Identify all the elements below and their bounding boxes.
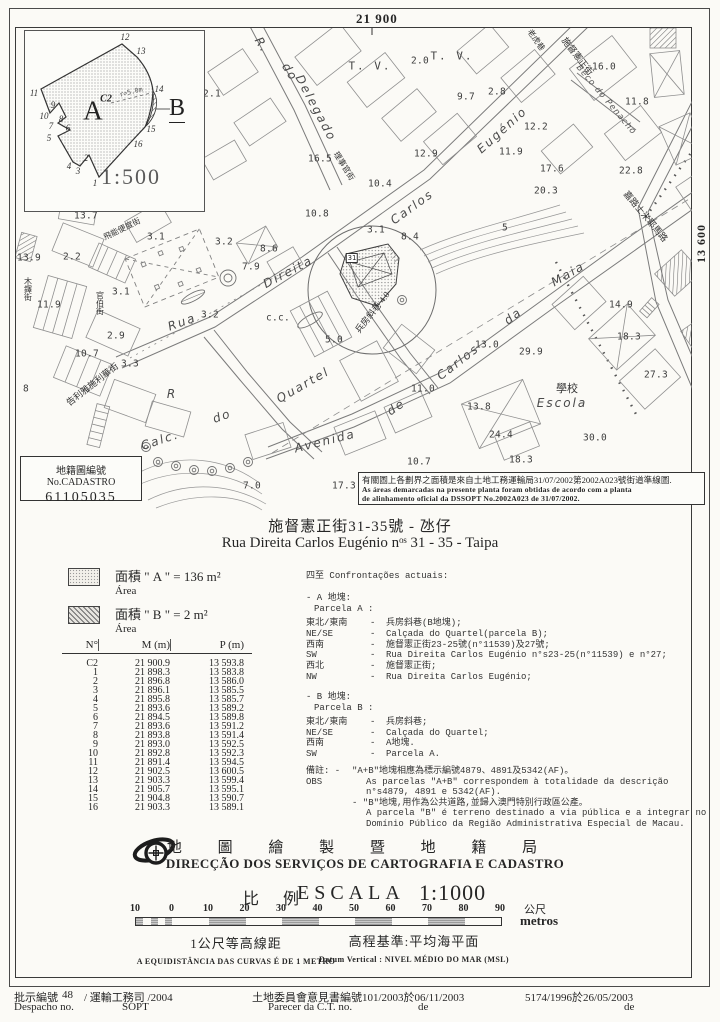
process-reference: 5174/1996於26/05/2003 bbox=[525, 989, 633, 1005]
scale-label-portuguese: ESCALA bbox=[297, 882, 405, 905]
inset-vertex-number: 15 bbox=[147, 124, 156, 134]
scale-segment bbox=[428, 918, 465, 925]
confrontation-text: A地塊. bbox=[386, 738, 415, 749]
area-a-swatch bbox=[68, 568, 100, 586]
coordinates-table-header: N° M (m) P (m) bbox=[62, 639, 252, 654]
area-b-swatch bbox=[68, 606, 100, 624]
process-reference-de: de bbox=[624, 1001, 634, 1013]
area-legend: 面積 " A " = 136 m² Área 面積 " B " = 2 m² Á… bbox=[68, 566, 221, 642]
parcel-b-zh: - B 地塊: bbox=[306, 689, 710, 702]
confrontation-text: 西北 bbox=[306, 661, 370, 672]
confrontation-text: NW bbox=[306, 672, 370, 683]
observation-line: n°s4879, 4891 e 5342(AF). bbox=[352, 787, 706, 798]
parcel-b-block: - B 地塊: Parcela B : 東北/東南-兵房斜巷;NE/SE-Cal… bbox=[306, 689, 710, 760]
confrontation-text: - bbox=[370, 618, 386, 629]
scale-tick-label: 70 bbox=[422, 903, 432, 914]
grid-coordinate-top: 21 900 bbox=[356, 11, 398, 27]
alignment-note-box: 有關圖上各劃界之面積是來自土地工務運輸局31/07/2002第2002A023號… bbox=[358, 472, 705, 505]
inset-vertex-number: 7 bbox=[49, 121, 54, 131]
coordinate-row: 1621 903.313 589.1 bbox=[62, 803, 252, 812]
confrontation-text: Rua Direita Carlos Eugénio n°s23-25(n°11… bbox=[386, 650, 667, 661]
confrontation-text: 兵房斜巷; bbox=[386, 717, 427, 728]
confrontation-item: NE/SE-Calçada do Quartel; bbox=[306, 728, 710, 739]
contour-equidistance-note: 1公尺等高線距 A EQUIDISTÂNCIA DAS CURVAS É DE … bbox=[137, 933, 336, 966]
confrontation-text: - bbox=[370, 650, 386, 661]
datum-note-pt: Datum Vertical : NIVEL MÉDIO DO MAR (MSL… bbox=[319, 955, 509, 964]
confrontation-item: 西南-施督憲正街23-25號(n°11539)及27號; bbox=[306, 640, 710, 651]
area-b-label: 面積 " B " = 2 m² bbox=[115, 604, 208, 623]
confrontation-text: 東北/東南 bbox=[306, 618, 370, 629]
confrontation-item: NW-Rua Direita Carlos Eugénio; bbox=[306, 672, 710, 683]
cadastro-number-box: 地籍圖編號 No.CADASTRO 61105035 bbox=[20, 456, 142, 501]
scale-segment bbox=[282, 918, 319, 925]
plan-title-portuguese: Rua Direita Carlos Eugénio nᵒˢ 31 - 35 -… bbox=[0, 535, 720, 552]
confrontation-item: 東北/東南-兵房斜巷; bbox=[306, 717, 710, 728]
tree-symbols bbox=[142, 296, 407, 476]
inset-parcel-letter: C2 bbox=[100, 94, 112, 105]
contour-note-zh: 1公尺等高線距 bbox=[137, 933, 336, 952]
confrontation-text: Calçada do Quartel; bbox=[386, 728, 489, 739]
inset-vertex-number: 11 bbox=[30, 88, 38, 98]
scale-segment bbox=[465, 918, 502, 925]
confrontations-heading: 四至 Confrontações actuais: bbox=[306, 568, 710, 581]
col-header-m: M (m) bbox=[98, 639, 170, 651]
coordinate-cell: 16 bbox=[62, 803, 98, 812]
coordinate-cell: 21 903.3 bbox=[98, 803, 170, 812]
parcel-a-zh: - A 地塊: bbox=[306, 590, 710, 603]
inset-vertex-number: 2 bbox=[84, 153, 89, 163]
parcel-a-pt: Parcela A : bbox=[306, 604, 710, 614]
confrontation-item: NE/SE-Calçada do Quartel(parcela B); bbox=[306, 629, 710, 640]
scale-subdivision bbox=[136, 918, 143, 925]
confrontations-section: 四至 Confrontações actuais: - A 地塊: Parcel… bbox=[306, 568, 710, 830]
area-b-row: 面積 " B " = 2 m² Área bbox=[68, 604, 221, 635]
observations-block: 備註: - OBS "A+B"地塊相應為標示編號4879、4891及5342(A… bbox=[306, 766, 710, 830]
vertical-datum-note: 高程基準:平均海平面 Datum Vertical : NIVEL MÉDIO … bbox=[319, 931, 509, 964]
coordinate-cell: 13 589.1 bbox=[170, 803, 244, 812]
scale-tick-label: 90 bbox=[495, 903, 505, 914]
inset-vertex-number: 10 bbox=[40, 111, 49, 121]
confrontation-text: - bbox=[370, 629, 386, 640]
area-a-label: 面積 " A " = 136 m² bbox=[115, 566, 221, 585]
parcel-b-pt: Parcela B : bbox=[306, 703, 710, 713]
observation-line: "A+B"地塊相應為標示編號4879、4891及5342(AF)。 bbox=[352, 766, 706, 777]
confrontation-text: - bbox=[370, 640, 386, 651]
scale-tick-label: 20 bbox=[240, 903, 250, 914]
confrontation-text: - bbox=[370, 749, 386, 760]
scale-segment bbox=[209, 918, 246, 925]
confrontation-text: Rua Direita Carlos Eugénio; bbox=[386, 672, 532, 683]
contour-note-pt: A EQUIDISTÂNCIA DAS CURVAS É DE 1 METRO bbox=[137, 957, 336, 966]
area-b-sublabel: Área bbox=[115, 623, 208, 635]
scale-segment bbox=[355, 918, 392, 925]
confrontation-text: 西南 bbox=[306, 640, 370, 651]
agency-name-chinese: 地 圖 繪 製 暨 地 籍 局 bbox=[20, 836, 700, 857]
scale-tick-label: 30 bbox=[276, 903, 286, 914]
confrontation-item: SW-Rua Direita Carlos Eugénio n°s23-25(n… bbox=[306, 650, 710, 661]
obs-label-zh: 備註: - bbox=[306, 766, 352, 777]
fountain-symbols bbox=[180, 270, 325, 331]
confrontation-text: 兵房斜巷(B地塊); bbox=[386, 618, 462, 629]
scale-segment bbox=[319, 918, 356, 925]
confrontation-text: 東北/東南 bbox=[306, 717, 370, 728]
scale-subdivision bbox=[158, 918, 165, 925]
graphic-scale-bar: 100102030405060708090 公尺 metros bbox=[121, 903, 591, 933]
confrontation-text: - bbox=[370, 661, 386, 672]
confrontation-text: NE/SE bbox=[306, 728, 370, 739]
agency-name-portuguese: DIRECÇÃO DOS SERVIÇOS DE CARTOGRAFIA E C… bbox=[10, 856, 720, 872]
confrontation-item: 西南-A地塊. bbox=[306, 738, 710, 749]
scale-tick-label: 60 bbox=[386, 903, 396, 914]
scale-tick-label: 10 bbox=[130, 903, 140, 914]
inset-vertex-number: 12 bbox=[121, 32, 130, 42]
confrontations-heading-pt: Confrontações actuais: bbox=[329, 571, 448, 581]
despacho-label-pt: Despacho no. bbox=[14, 1001, 74, 1013]
confrontation-text: SW bbox=[306, 650, 370, 661]
plan-title-chinese: 施督憲正街31-35號 - 氹仔 bbox=[0, 515, 720, 536]
scale-unit-portuguese: metros bbox=[520, 913, 558, 929]
area-a-row: 面積 " A " = 136 m² Área bbox=[68, 566, 221, 597]
scale-tick-label: 40 bbox=[313, 903, 323, 914]
inset-parcel-letter: B bbox=[169, 95, 185, 123]
inset-vertex-number: 5 bbox=[47, 133, 52, 143]
inset-vertex-number: 4 bbox=[67, 161, 72, 171]
confrontation-text: Parcela A. bbox=[386, 749, 440, 760]
scale-tick-label: 80 bbox=[459, 903, 469, 914]
inset-vertex-number: 1 bbox=[93, 178, 98, 188]
confrontations-heading-zh: 四至 bbox=[306, 570, 324, 580]
inset-vertex-number: 16 bbox=[134, 139, 143, 149]
cadastral-plan-sheet: 21 900 13 600 bbox=[0, 0, 720, 1022]
confrontation-text: 施督憲正街23-25號(n°11539)及27號; bbox=[386, 640, 550, 651]
grid-coordinate-right: 13 600 bbox=[694, 224, 709, 263]
scale-segment bbox=[246, 918, 283, 925]
scale-tick-label: 0 bbox=[169, 903, 174, 914]
observations-label: 備註: - OBS bbox=[306, 766, 352, 830]
inset-vertex-number: 13 bbox=[137, 46, 146, 56]
note-portuguese-2: de alinhamento oficial da DSSOPT No.2002… bbox=[362, 495, 701, 504]
scale-tick-label: 50 bbox=[349, 903, 359, 914]
scale-tick-label: 10 bbox=[203, 903, 213, 914]
confrontation-text: - bbox=[370, 738, 386, 749]
cadastro-box-title: 地籍圖編號 No.CADASTRO bbox=[21, 462, 141, 488]
scale-subdivision bbox=[143, 918, 150, 925]
col-header-p: P (m) bbox=[170, 639, 244, 651]
scale-segment bbox=[173, 918, 210, 925]
confrontation-text: NE/SE bbox=[306, 629, 370, 640]
scale-segment bbox=[392, 918, 429, 925]
despacho-number: 48 bbox=[62, 989, 73, 1001]
inset-vertex-number: 8 bbox=[59, 114, 64, 124]
confrontation-text: - bbox=[370, 672, 386, 683]
observation-line: Domínio Público da Região Administrativa… bbox=[352, 819, 706, 830]
cadastro-number: 61105035 bbox=[21, 490, 141, 506]
despacho-sopt: SOPT bbox=[122, 1001, 149, 1013]
scale-subdivision bbox=[165, 918, 172, 925]
parcel-a-block: - A 地塊: Parcela A : 東北/東南-兵房斜巷(B地塊);NE/S… bbox=[306, 590, 710, 683]
confrontation-text: - bbox=[370, 728, 386, 739]
parecer-de: de bbox=[418, 1001, 428, 1013]
inset-vertex-number: 14 bbox=[155, 84, 164, 94]
confrontation-item: SW-Parcela A. bbox=[306, 749, 710, 760]
observation-line: - "B"地塊,用作為公共道路,並歸入澳門特別行政區公產。 bbox=[352, 798, 706, 809]
confrontation-item: 西北-施督憲正街; bbox=[306, 661, 710, 672]
confrontation-text: SW bbox=[306, 749, 370, 760]
confrontation-text: 施督憲正街; bbox=[386, 661, 436, 672]
obs-label-pt: OBS bbox=[306, 777, 352, 788]
datum-note-zh: 高程基準:平均海平面 bbox=[319, 931, 509, 950]
confrontation-text: - bbox=[370, 717, 386, 728]
col-header-point: N° bbox=[62, 639, 98, 651]
observation-line: As parcelas "A+B" correspondem à totalid… bbox=[352, 777, 706, 788]
inset-vertex-number: 6 bbox=[66, 123, 71, 133]
detail-inset: 12345678910111213141516ABC2r=5.0m 1:500 bbox=[24, 30, 205, 212]
area-a-sublabel: Área bbox=[115, 585, 221, 597]
parcel-a-highlight bbox=[340, 244, 399, 306]
inset-scale-label: 1:500 bbox=[101, 164, 161, 190]
parecer-label-pt: Parecer da C.T. no. bbox=[268, 1001, 352, 1013]
confrontation-item: 東北/東南-兵房斜巷(B地塊); bbox=[306, 618, 710, 629]
scale-bar bbox=[135, 917, 502, 926]
coordinates-table: N° M (m) P (m) C221 900.913 593.8121 898… bbox=[62, 639, 252, 812]
stairs-symbols bbox=[87, 298, 659, 448]
inset-vertex-number: 9 bbox=[51, 100, 56, 110]
observation-line: A parcela "B" é terreno destinado a via … bbox=[352, 808, 706, 819]
confrontation-text: 西南 bbox=[306, 738, 370, 749]
scale-subdivision bbox=[151, 918, 158, 925]
confrontation-text: Calçada do Quartel(parcela B); bbox=[386, 629, 548, 640]
inset-vertex-number: 3 bbox=[76, 166, 81, 176]
